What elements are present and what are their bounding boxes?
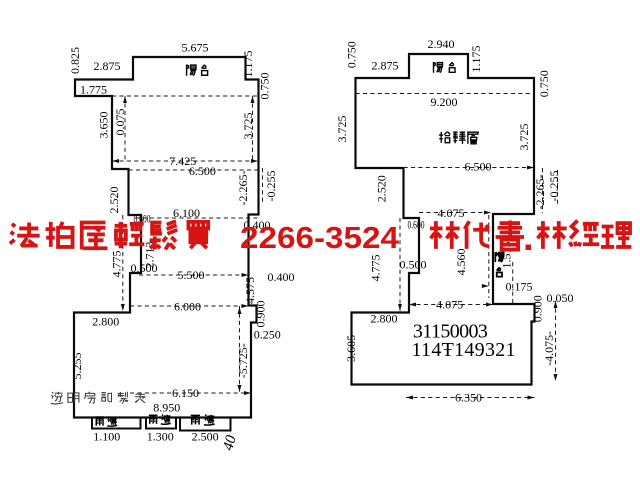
svg-text:6.000: 6.000 [174, 300, 201, 314]
svg-text:1.100: 1.100 [93, 430, 120, 444]
svg-text:0.500: 0.500 [131, 261, 158, 275]
svg-text:2.875: 2.875 [372, 59, 399, 73]
svg-text:0.825: 0.825 [68, 47, 82, 74]
svg-text:1.300: 1.300 [147, 430, 174, 444]
svg-text:0.750: 0.750 [258, 73, 272, 100]
svg-text:0.075: 0.075 [113, 109, 127, 136]
svg-text:3.605: 3.605 [344, 335, 358, 362]
svg-text:2.800: 2.800 [371, 312, 398, 326]
svg-text:1.775: 1.775 [80, 83, 107, 97]
svg-text:6.150: 6.150 [172, 386, 199, 400]
svg-text:0.750: 0.750 [345, 41, 359, 68]
svg-text:-0.255: -0.255 [547, 171, 561, 202]
svg-text:8.950: 8.950 [153, 401, 180, 415]
svg-text:6.350: 6.350 [455, 391, 482, 405]
svg-text:2.500: 2.500 [192, 430, 219, 444]
svg-text:6.500: 6.500 [465, 160, 492, 174]
svg-text:0.250: 0.250 [254, 328, 281, 342]
svg-text:-4.075-: -4.075- [542, 331, 556, 366]
svg-text:5.675: 5.675 [182, 41, 209, 55]
svg-text:5.255: 5.255 [70, 353, 84, 380]
svg-text:2.520: 2.520 [375, 175, 389, 202]
svg-text:-2.265-: -2.265- [533, 175, 547, 210]
svg-text:2.940: 2.940 [428, 37, 455, 51]
svg-text:5.500: 5.500 [178, 268, 205, 282]
svg-text:4.775: 4.775 [369, 255, 383, 282]
svg-text:0.175: 0.175 [506, 280, 533, 294]
svg-text:4.575: 4.575 [243, 277, 257, 304]
svg-text:2.875: 2.875 [94, 59, 121, 73]
svg-text:0.400: 0.400 [268, 270, 295, 284]
svg-text:2266-3524: 2266-3524 [240, 221, 399, 255]
svg-text:6.100: 6.100 [173, 206, 200, 220]
svg-text:-0.255: -0.255 [264, 171, 278, 202]
svg-text:4.075: 4.075 [438, 206, 465, 220]
svg-text:3.725: 3.725 [335, 116, 349, 143]
svg-text:2.520: 2.520 [107, 187, 121, 214]
svg-text:-5.725-: -5.725- [236, 343, 250, 378]
svg-text:3.650: 3.650 [97, 112, 111, 139]
svg-text:1.175: 1.175 [241, 50, 255, 77]
svg-text:4.775: 4.775 [110, 251, 124, 278]
svg-text:3.725: 3.725 [517, 124, 531, 151]
svg-text:2.800: 2.800 [92, 315, 119, 329]
svg-text:4.075: 4.075 [436, 298, 463, 312]
svg-text:0.050: 0.050 [547, 291, 574, 305]
svg-text:0.900: 0.900 [531, 295, 545, 322]
svg-text:9.200: 9.200 [431, 95, 458, 109]
svg-text:0.600: 0.600 [408, 218, 425, 232]
svg-text:0.500: 0.500 [400, 258, 427, 272]
svg-text:3.725: 3.725 [241, 112, 255, 139]
svg-text:0.750: 0.750 [537, 70, 551, 97]
svg-text:114Ŧ149321: 114Ŧ149321 [412, 339, 516, 361]
svg-text:4.560: 4.560 [454, 249, 468, 276]
svg-text:-2.265-: -2.265- [236, 170, 250, 205]
svg-text:0.900: 0.900 [253, 301, 267, 328]
svg-text:1.175: 1.175 [469, 46, 483, 73]
svg-text:6.500: 6.500 [189, 164, 216, 178]
